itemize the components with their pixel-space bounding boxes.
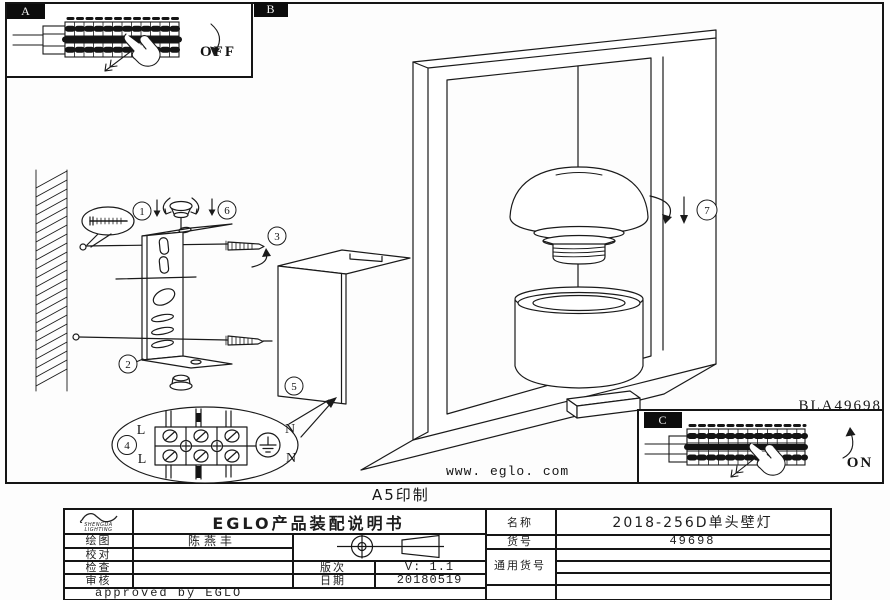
name-label: 名称 [485, 510, 555, 534]
audit-label: 审核 [65, 573, 132, 587]
title-block: SHENGDA LIGHTING EGLO产品装配说明书 名称 2018-256… [63, 508, 832, 600]
panel-b-label: B [254, 2, 288, 17]
rotate-on-arrow-icon [843, 427, 856, 458]
doc-title: EGLO产品装配说明书 [132, 510, 485, 533]
common-item-label: 通用货号 [489, 548, 551, 584]
approved-note: approved by EGLO [65, 587, 485, 599]
item-label: 货号 [485, 534, 555, 548]
switch-state-off: OFF [191, 44, 245, 61]
panel-a-drawing [7, 4, 251, 76]
name-value: 2018-256D单头壁灯 [555, 510, 830, 534]
shengda-logo: SHENGDA LIGHTING [65, 510, 132, 533]
draw-value: 陈燕丰 [132, 533, 292, 547]
version-value: V: 1.1 [374, 560, 485, 573]
website-text: www. eglo. com [446, 464, 569, 479]
panel-c: C [637, 409, 884, 484]
print-format-note: A5印制 [372, 484, 430, 505]
projection-symbol-icon [292, 533, 485, 560]
date-label: 日期 [292, 573, 374, 587]
switch-state-on: ON [835, 455, 885, 472]
assembly-instruction-sheet: L L N N 1 2 3 4 5 [0, 0, 890, 600]
model-code: BLA49698 [684, 398, 882, 415]
panel-a: A [5, 2, 253, 78]
item-value: 49698 [555, 534, 830, 548]
date-value: 20180519 [374, 573, 485, 587]
